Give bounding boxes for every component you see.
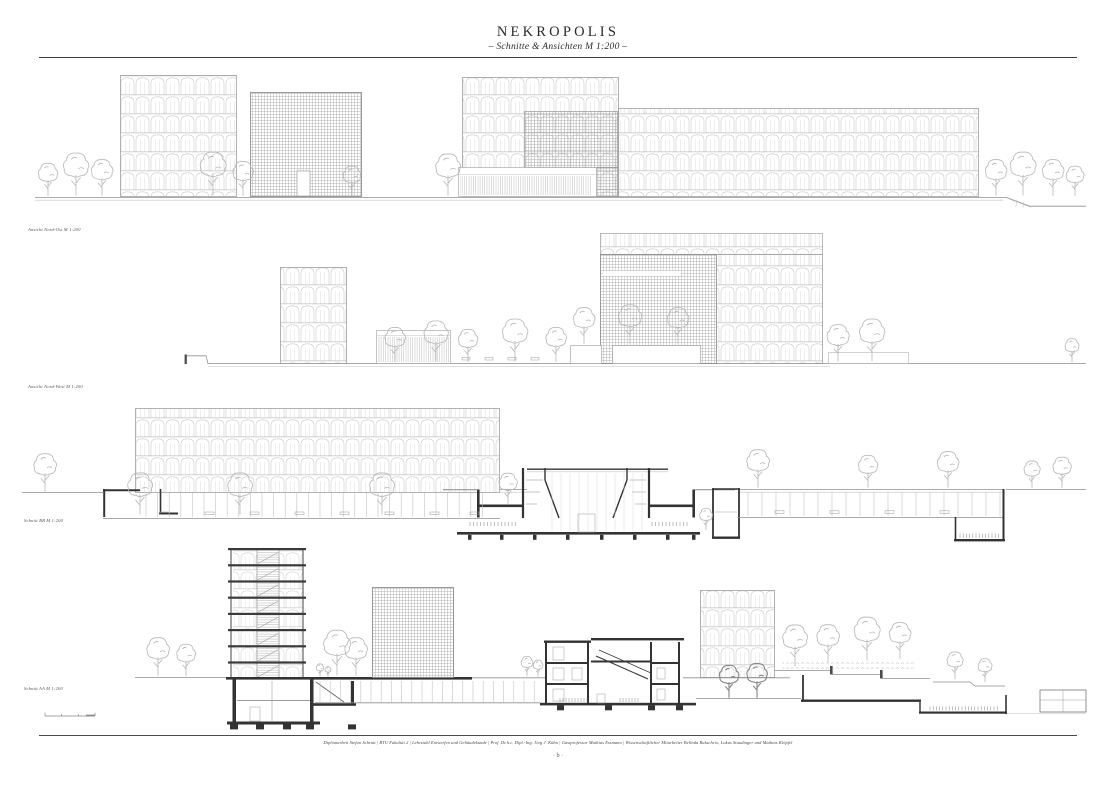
scale-bar bbox=[45, 713, 95, 717]
footer-rule bbox=[39, 735, 1077, 736]
building-arch-elevation bbox=[136, 409, 500, 493]
label-ansicht-nord-west: Ansicht Nord-West M 1:200 bbox=[28, 384, 83, 389]
drawing-schnitt-aa bbox=[45, 548, 1086, 729]
label-schnitt-bb: Schnitt BB M 1:200 bbox=[24, 518, 63, 523]
building-arch-tower bbox=[717, 255, 823, 364]
building-arch-block bbox=[121, 76, 237, 197]
building-long-wing bbox=[619, 109, 979, 197]
presentation-board: NEKROPOLIS – Schnitte & Ansichten M 1:20… bbox=[0, 0, 1116, 789]
drawing-ansicht-nord-west bbox=[185, 234, 1086, 367]
building-arch-band bbox=[601, 234, 823, 255]
footer-credits: Diplomarbeit Stefan Schratt | BTU Fakult… bbox=[0, 740, 1116, 745]
drawing-schnitt-bb bbox=[22, 409, 1086, 542]
drawings-canvas bbox=[0, 0, 1116, 789]
label-schnitt-aa: Schnitt AA M 1:200 bbox=[24, 686, 63, 691]
label-ansicht-nord-ost: Ansicht Nord-Ost M 1:200 bbox=[28, 227, 81, 232]
page-marker: · b · bbox=[0, 752, 1116, 759]
drawing-ansicht-nord-ost bbox=[35, 76, 1086, 209]
building-small-arch bbox=[281, 268, 347, 364]
building-arch-elevation-2 bbox=[701, 591, 775, 678]
building-mesh-cube-3 bbox=[373, 588, 454, 678]
